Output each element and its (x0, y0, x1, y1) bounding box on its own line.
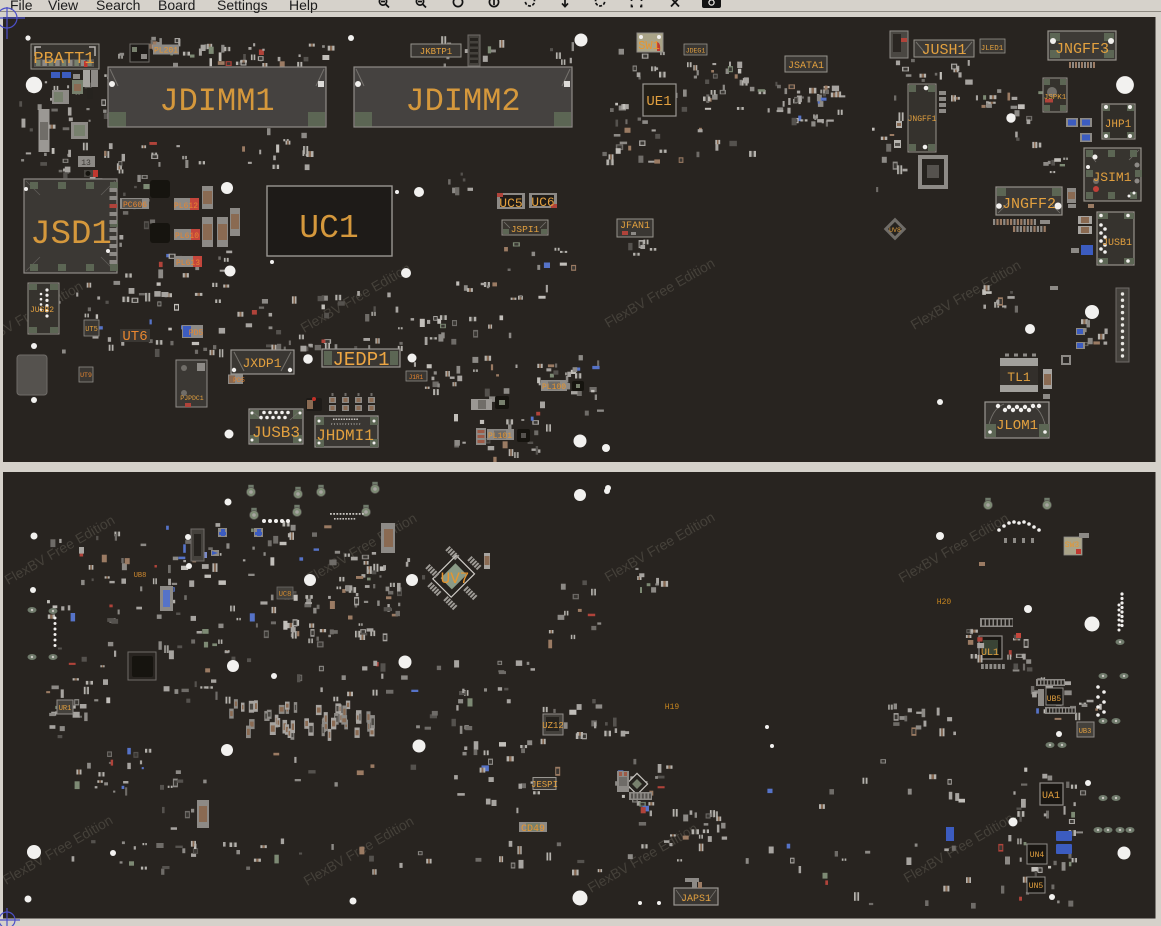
svg-text:UE1: UE1 (646, 94, 671, 110)
svg-text:SW1: SW1 (638, 39, 660, 53)
svg-text:Settings: Settings (217, 0, 268, 13)
svg-text:UR1: UR1 (59, 705, 72, 713)
svg-text:View: View (48, 0, 79, 13)
svg-text:UT6: UT6 (122, 329, 147, 345)
svg-text:PL201: PL201 (154, 47, 178, 56)
svg-text:UB5: UB5 (1047, 695, 1062, 704)
svg-text:JSPK1: JSPK1 (1044, 94, 1067, 102)
svg-text:PL100: PL100 (542, 383, 566, 392)
svg-text:JXDP1: JXDP1 (242, 356, 281, 371)
svg-text:PJPDC1: PJPDC1 (180, 395, 204, 402)
svg-text:Search: Search (96, 0, 140, 13)
svg-text:UC5: UC5 (499, 196, 522, 211)
svg-text:UV8: UV8 (889, 227, 901, 234)
svg-text:H19: H19 (665, 703, 680, 712)
svg-text:JNGFF3: JNGFF3 (1055, 41, 1109, 58)
svg-text:JDEG1: JDEG1 (686, 48, 706, 55)
svg-text:JNGFF1: JNGFF1 (908, 115, 937, 124)
svg-text:PD5: PD5 (233, 377, 245, 384)
svg-text:PC606: PC606 (123, 201, 147, 210)
svg-text:JUSB3: JUSB3 (252, 424, 300, 442)
svg-text:UB3: UB3 (1079, 728, 1092, 736)
svg-text:Help: Help (289, 0, 318, 13)
svg-text:JSATA1: JSATA1 (788, 61, 824, 72)
svg-text:UT9: UT9 (80, 372, 92, 379)
svg-text:UZ12: UZ12 (542, 721, 564, 731)
svg-text:J1R1: J1R1 (409, 374, 424, 381)
svg-text:JSIM1: JSIM1 (1092, 170, 1131, 185)
svg-text:JESPI: JESPI (531, 780, 558, 790)
svg-text:JNGFF2: JNGFF2 (1002, 196, 1056, 213)
svg-text:JLOM1: JLOM1 (996, 418, 1038, 434)
svg-text:Board: Board (158, 0, 195, 13)
svg-text:JHP1: JHP1 (1105, 119, 1132, 131)
svg-text:UV7: UV7 (441, 570, 470, 588)
svg-text:JUSH1: JUSH1 (921, 42, 966, 59)
svg-text:PL613: PL613 (176, 259, 200, 268)
svg-text:JLED1: JLED1 (981, 45, 1004, 53)
svg-text:JDIMM2: JDIMM2 (405, 83, 520, 120)
svg-text:UT5: UT5 (85, 326, 98, 334)
svg-text:PBATT1: PBATT1 (33, 50, 94, 69)
svg-text:PD5: PD5 (189, 329, 204, 338)
svg-text:JSPI1: JSPI1 (511, 224, 540, 235)
svg-text:13: 13 (81, 159, 91, 168)
svg-text:JSD1: JSD1 (30, 216, 112, 254)
svg-text:JUSB1: JUSB1 (1102, 238, 1132, 249)
svg-text:UC1: UC1 (299, 210, 358, 247)
svg-text:TL1: TL1 (1007, 370, 1031, 385)
svg-text:UL1: UL1 (981, 648, 999, 659)
svg-text:PL612: PL612 (174, 202, 198, 211)
svg-text:H20: H20 (937, 598, 952, 607)
svg-text:UC8: UC8 (279, 591, 292, 599)
svg-text:SW3: SW3 (1065, 541, 1080, 550)
svg-text:PL610: PL610 (175, 232, 199, 241)
svg-text:JHDMI1: JHDMI1 (316, 427, 374, 445)
svg-text:UN5: UN5 (1029, 882, 1044, 891)
svg-text:JKBTP1: JKBTP1 (420, 47, 452, 57)
svg-text:UN4: UN4 (1030, 851, 1045, 860)
svg-text:JFAN1: JFAN1 (620, 221, 650, 232)
svg-text:CD49: CD49 (521, 824, 545, 835)
svg-text:UB8: UB8 (134, 572, 147, 580)
svg-text:JUSB2: JUSB2 (30, 306, 54, 315)
svg-text:UC6: UC6 (531, 195, 554, 210)
svg-text:UA1: UA1 (1042, 791, 1060, 802)
svg-text:JAPS1: JAPS1 (681, 894, 711, 905)
svg-text:JDIMM1: JDIMM1 (159, 83, 274, 120)
svg-text:PL101: PL101 (488, 432, 512, 441)
svg-text:JEDP1: JEDP1 (332, 349, 389, 371)
